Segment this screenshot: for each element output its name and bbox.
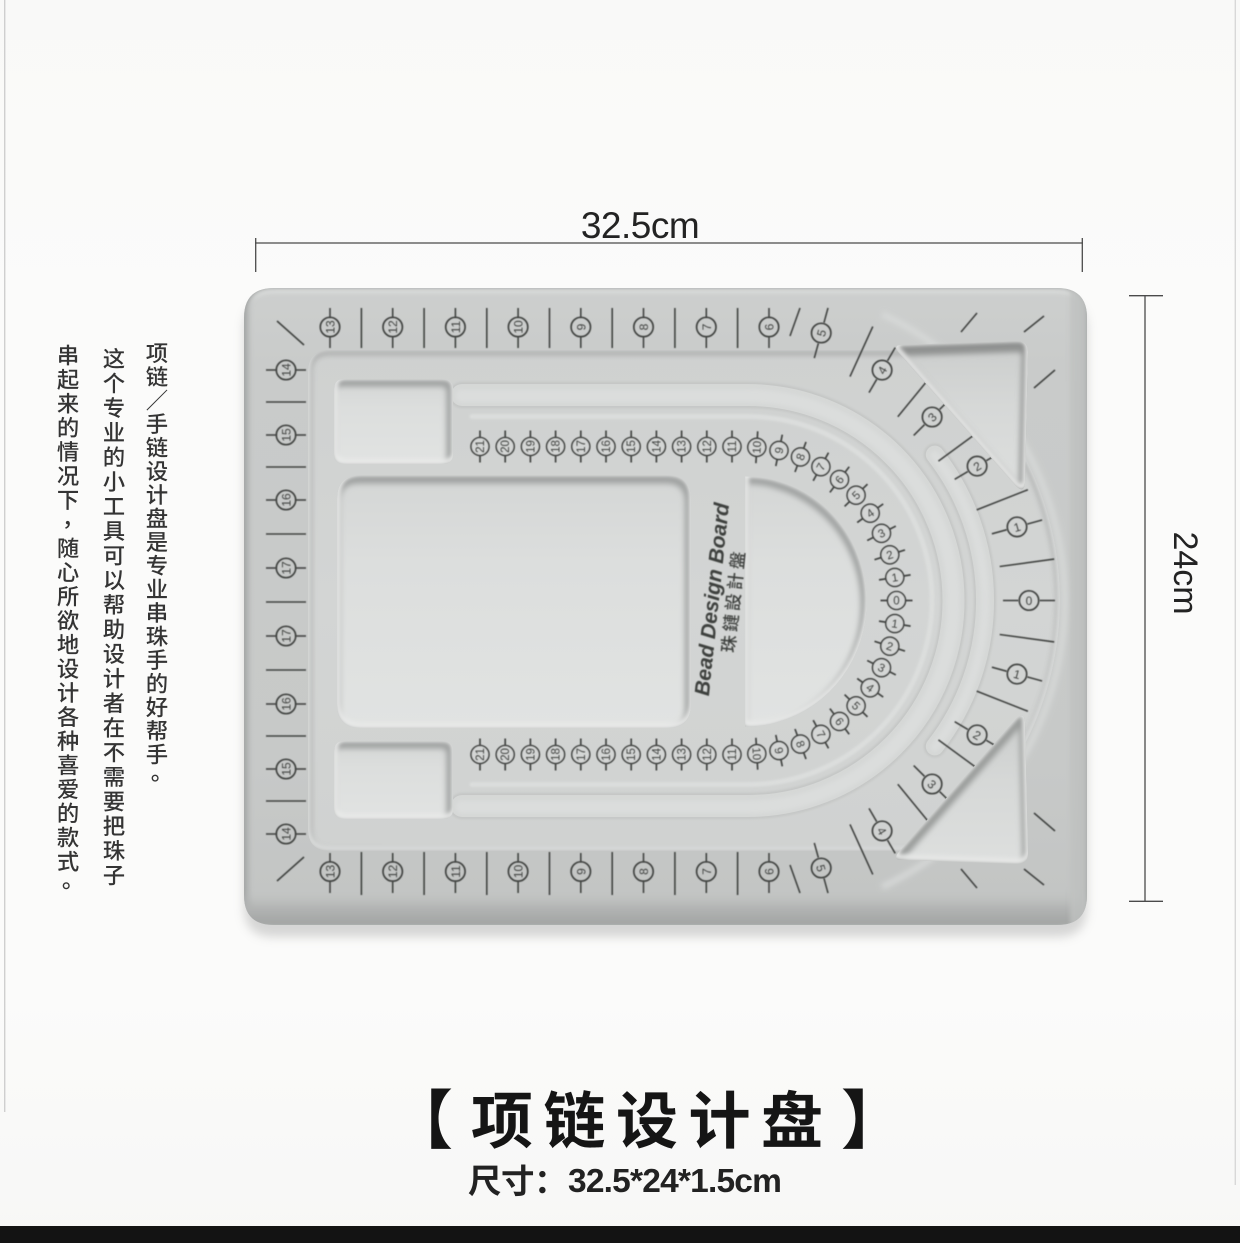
svg-text:32.5*24*1.5cm: 32.5*24*1.5cm: [568, 1163, 781, 1200]
svg-text:8: 8: [637, 868, 651, 875]
svg-text:9: 9: [574, 323, 588, 330]
svg-text:15: 15: [626, 440, 638, 453]
svg-text:20: 20: [500, 748, 512, 761]
svg-text:12: 12: [702, 748, 714, 761]
svg-text:16: 16: [601, 748, 613, 761]
svg-text:10: 10: [512, 320, 526, 334]
svg-text:17: 17: [576, 748, 588, 761]
svg-text:15: 15: [280, 428, 294, 442]
svg-text:9: 9: [574, 868, 588, 875]
svg-text:19: 19: [525, 440, 537, 453]
svg-text:14: 14: [280, 827, 294, 841]
svg-text:32.5cm: 32.5cm: [581, 205, 699, 246]
svg-text:14: 14: [651, 440, 663, 453]
svg-text:0: 0: [1026, 594, 1033, 608]
svg-text:12: 12: [702, 440, 714, 453]
svg-text:11: 11: [449, 320, 463, 333]
svg-text:12: 12: [386, 865, 400, 879]
svg-text:13: 13: [324, 865, 338, 879]
svg-text:18: 18: [551, 748, 563, 761]
svg-text:21: 21: [475, 748, 487, 761]
svg-text:6: 6: [763, 868, 777, 875]
svg-text:13: 13: [677, 748, 689, 761]
svg-text:15: 15: [626, 748, 638, 761]
svg-text:20: 20: [500, 440, 512, 453]
svg-text:10: 10: [751, 441, 764, 454]
svg-text:14: 14: [651, 748, 663, 761]
svg-text:6: 6: [763, 323, 777, 330]
svg-text:10: 10: [512, 865, 526, 879]
svg-text:17: 17: [280, 561, 294, 575]
svg-text:10: 10: [749, 747, 762, 760]
svg-text:11: 11: [727, 749, 739, 761]
svg-text:7: 7: [700, 323, 714, 330]
svg-text:13: 13: [324, 320, 338, 334]
svg-text:18: 18: [551, 440, 563, 453]
svg-text:0: 0: [893, 596, 899, 608]
svg-text:16: 16: [280, 493, 294, 507]
svg-text:15: 15: [280, 762, 294, 776]
svg-text:16: 16: [601, 440, 613, 453]
svg-text:13: 13: [677, 440, 689, 453]
svg-text:19: 19: [525, 748, 537, 761]
svg-text:16: 16: [280, 697, 294, 711]
svg-text:11: 11: [449, 865, 463, 878]
svg-text:14: 14: [280, 363, 294, 377]
svg-text:21: 21: [475, 440, 487, 453]
svg-text:24cm: 24cm: [1166, 531, 1204, 614]
svg-text:17: 17: [280, 629, 294, 643]
svg-text:11: 11: [727, 441, 739, 453]
svg-text:8: 8: [637, 323, 651, 330]
svg-text:17: 17: [576, 440, 588, 453]
svg-text:7: 7: [700, 868, 714, 875]
svg-text:12: 12: [386, 320, 400, 334]
